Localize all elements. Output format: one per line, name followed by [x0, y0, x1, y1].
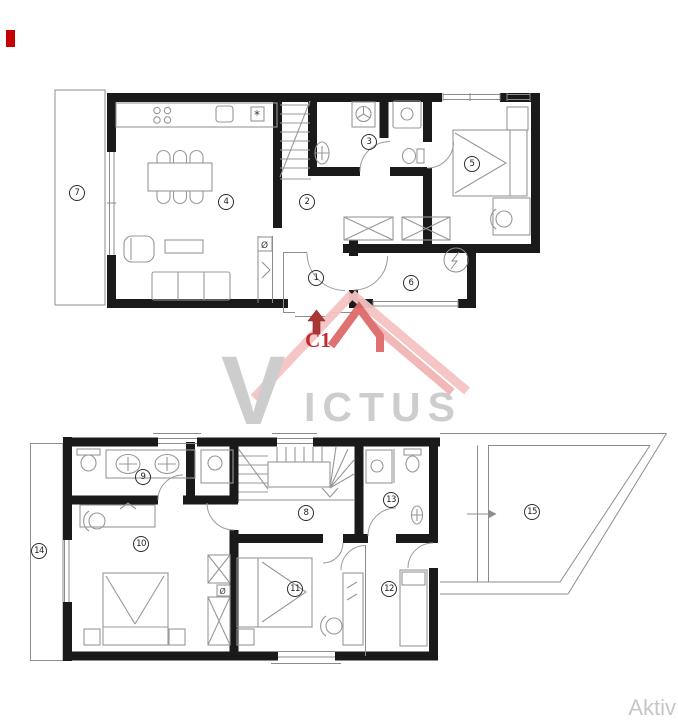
room-label-3: 3 [361, 134, 377, 150]
room-label-11: 11 [287, 581, 303, 597]
room-label-6: 6 [403, 275, 419, 291]
room-label-2: 2 [299, 194, 315, 210]
room-label-9: 9 [135, 469, 151, 485]
room-label-12: 12 [381, 581, 397, 597]
room-label-14: 14 [31, 543, 47, 559]
room-label-4: 4 [218, 194, 234, 210]
room-label-10: 10 [133, 536, 149, 552]
room-label-1: 1 [308, 270, 324, 286]
room-label-15: 15 [524, 504, 540, 520]
room-label-5: 5 [464, 156, 480, 172]
room-label-8: 8 [298, 505, 314, 521]
entrance-arrow-layer [0, 0, 678, 727]
brand-text: Aktiv [628, 695, 676, 721]
room-label-13: 13 [383, 492, 399, 508]
floorplan-page: * [0, 0, 678, 727]
entrance-label: C1 [296, 328, 340, 353]
room-label-7: 7 [69, 185, 85, 201]
